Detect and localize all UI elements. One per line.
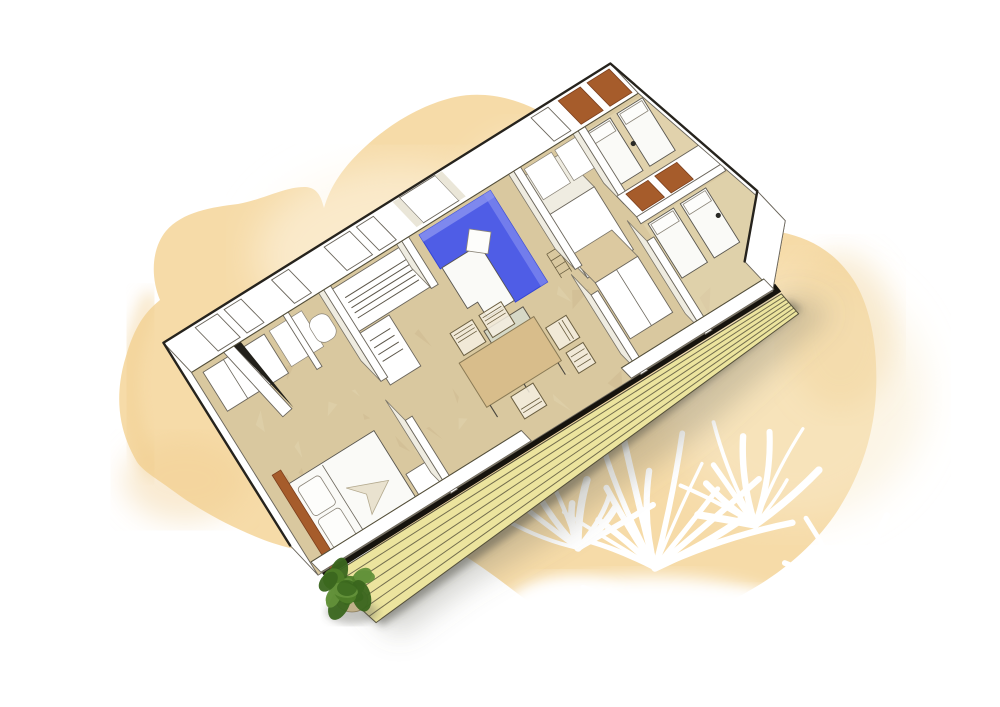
wash-deep-patch [123,438,247,522]
sofa-pillow [466,229,491,254]
frond-base-white-2 [625,593,925,703]
floorplan-illustration [0,0,1000,707]
scene-svg [0,0,1000,707]
